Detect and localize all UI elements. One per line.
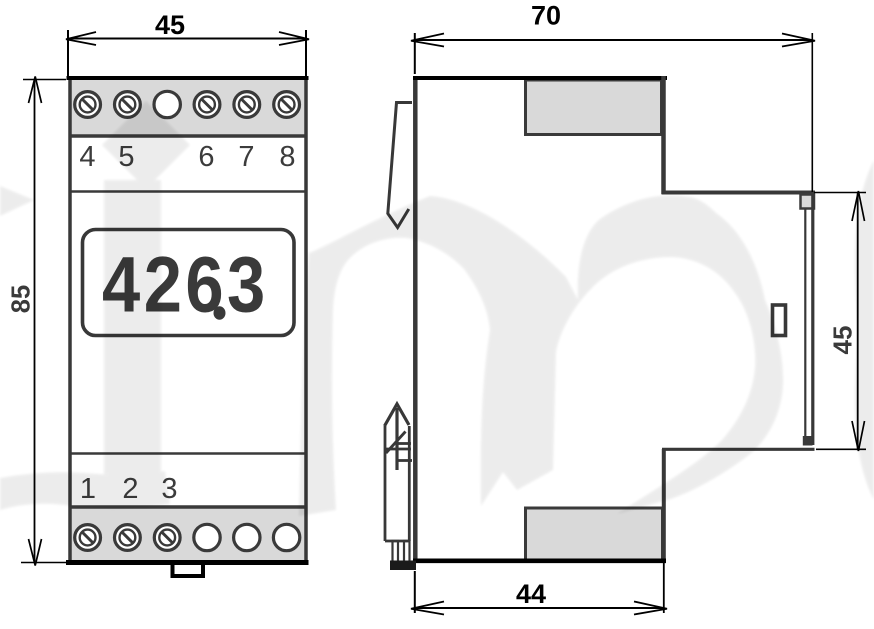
svg-text:3: 3 (227, 240, 265, 329)
svg-text:70: 70 (531, 1, 561, 31)
svg-text:45: 45 (155, 10, 185, 40)
svg-text:85: 85 (8, 285, 36, 313)
svg-text:45: 45 (828, 326, 858, 355)
svg-text:8: 8 (279, 141, 295, 173)
svg-text:44: 44 (516, 579, 546, 609)
svg-text:6: 6 (198, 141, 214, 173)
svg-text:7: 7 (238, 141, 254, 173)
svg-text:4: 4 (79, 141, 95, 173)
